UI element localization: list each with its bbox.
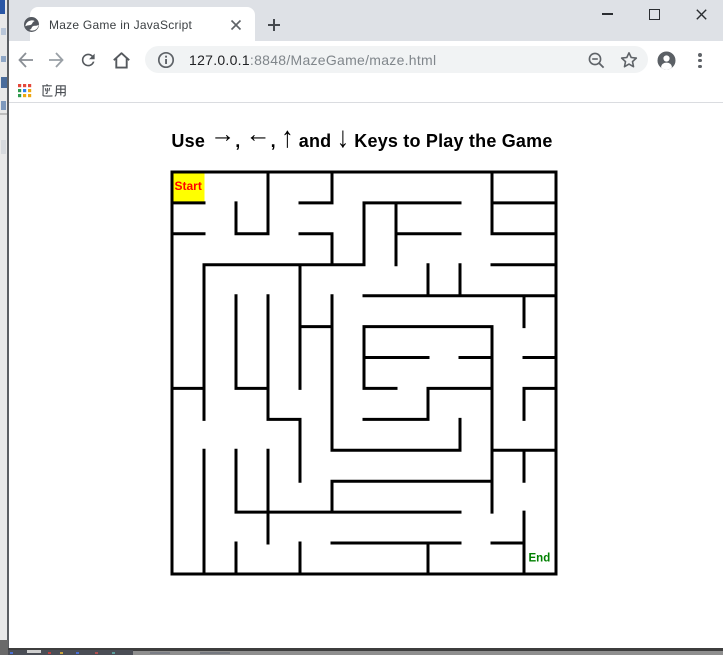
svg-text:Start: Start <box>175 179 202 193</box>
svg-text:End: End <box>529 553 551 565</box>
